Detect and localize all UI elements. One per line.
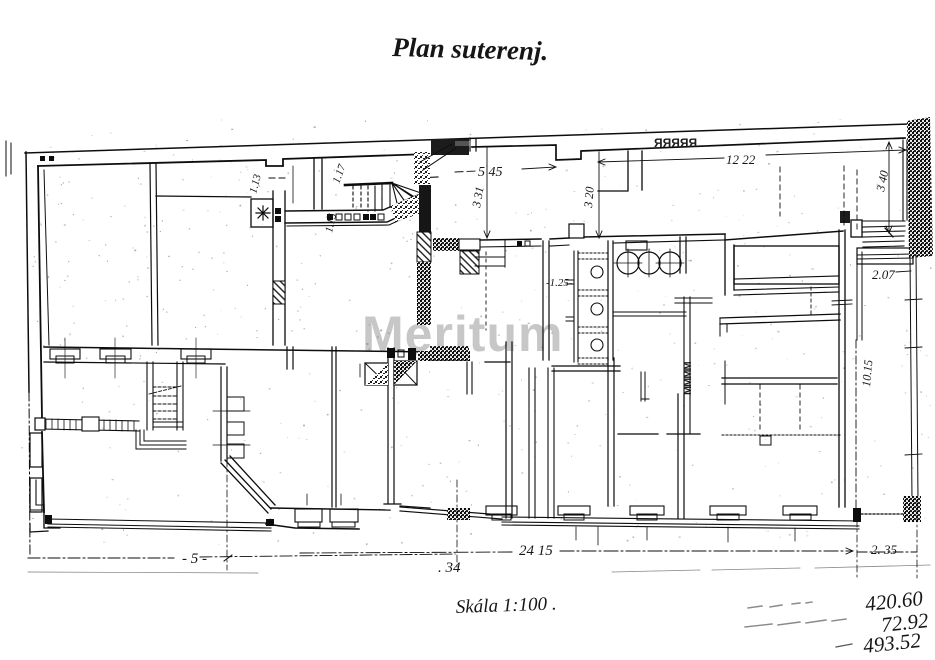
svg-text:12 22: 12 22	[726, 152, 756, 167]
svg-text:2. 35: 2. 35	[871, 542, 898, 557]
svg-text:ММММ: ММММ	[682, 362, 694, 395]
svg-text:493.52: 493.52	[862, 628, 922, 658]
svg-text:-1.25-: -1.25-	[546, 277, 573, 289]
svg-text:- 5 -: - 5 -	[182, 551, 207, 567]
svg-text:Plan suterenj.: Plan suterenj.	[391, 32, 549, 66]
svg-text:1.15: 1.15	[323, 212, 339, 234]
svg-text:1.13: 1.13	[247, 173, 264, 195]
svg-text:10.15: 10.15	[859, 359, 875, 387]
svg-text:ЯЯЯЯЯ: ЯЯЯЯЯ	[654, 136, 697, 150]
svg-text:3 20: 3 20	[581, 186, 597, 209]
svg-text:Skála 1:100 .: Skála 1:100 .	[455, 593, 556, 618]
svg-text:. 34: . 34	[438, 560, 461, 576]
svg-text:24 15: 24 15	[519, 543, 553, 559]
svg-text:3 31: 3 31	[469, 185, 487, 209]
svg-text:5 45: 5 45	[478, 165, 503, 180]
svg-text:1.17: 1.17	[331, 162, 349, 185]
svg-text:2.07: 2.07	[872, 267, 895, 282]
